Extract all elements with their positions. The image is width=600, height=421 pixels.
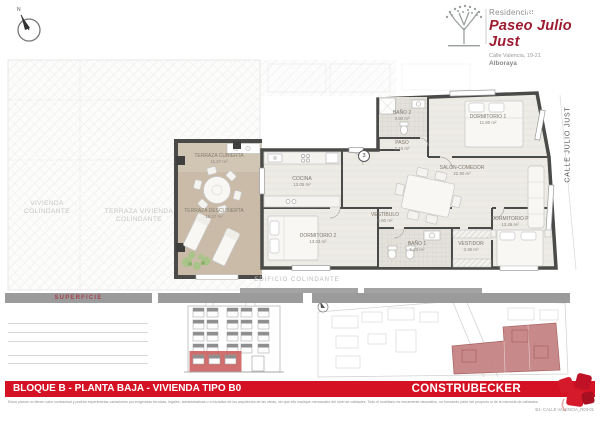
superficie-row-line [8, 355, 148, 356]
room-label-terraza-cubierta: TERRAZA CUBIERTA11.27 m² [194, 153, 243, 165]
room-label-bano-1: BAÑO 15.23 m² [408, 241, 426, 253]
room-label-vestidor: VESTIDOR3.36 m² [458, 241, 484, 253]
construbecker-logo-icon [554, 369, 598, 415]
room-label-dormitorio-2: DORMITORIO 213.03 m² [300, 233, 337, 245]
sofa-icon [528, 166, 544, 228]
superficie-row-line [8, 332, 148, 333]
room-label-terraza-descubierta: TERRAZA DESCUBIERTA18.27 m² [184, 208, 244, 220]
siteplan-header-bar [312, 293, 570, 303]
label-calle-julio-just: CALLE JULIO JUST [565, 105, 572, 185]
room-label-vestibulo: VESTÍBULO5.60 m² [371, 212, 399, 224]
siteplan-highlight [452, 323, 560, 374]
label-edificio-colindante: EDIFICIO COLINDANTE [237, 277, 357, 285]
footer-title: BLOQUE B - PLANTA BAJA - VIVIENDA TIPO B… [13, 381, 241, 397]
superficie-row-line [8, 341, 148, 342]
construbecker-mark-icon [528, 3, 538, 15]
superficie-row-line [8, 363, 148, 364]
elevation-header-bar [158, 293, 303, 303]
compass-north-label: N [17, 7, 21, 13]
room-label-paso: PASO2.16 m² [395, 140, 410, 152]
footer-disclaimer: Estos planos no tienen valor contractual… [8, 400, 596, 404]
label-vivienda-colindante: VIVIENDA COLINDANTE [12, 200, 82, 217]
elevation-thumbnail [184, 299, 284, 372]
room-label-cocina: COCINA13.05 m² [292, 176, 311, 188]
brand-title: Paseo Julio Just [489, 18, 600, 50]
room-label-bano-2: BAÑO 23.80 m² [393, 110, 411, 122]
north-compass-icon [18, 15, 40, 41]
tree-logo-icon [446, 5, 482, 47]
brand-address: Calle Valencia, 19-21 [489, 53, 600, 59]
terrace-counter [227, 144, 260, 154]
construbecker-wordmark: CONSTRUBECKER [412, 381, 521, 397]
footer-title-bar: BLOQUE B - PLANTA BAJA - VIVIENDA TIPO B… [5, 381, 595, 397]
label-terraza-vivienda-colindante: TERRAZA VIVIENDA COLINDANTE [101, 208, 177, 225]
room-label-salon-comedor: SALÓN-COMEDOR22.90 m² [440, 165, 485, 177]
plan-marker: 3 [358, 150, 370, 162]
brand-city: Alboraya [489, 60, 600, 67]
floor-plan-sheet: N Residencial Paseo Julio Just Calle Val… [0, 0, 600, 421]
siteplan-thumbnail [318, 300, 568, 377]
room-label-dormitorio-p: DORMITORIO P13.26 m² [491, 216, 528, 228]
brand-residencial: Residencial [489, 8, 600, 17]
brand-block: Residencial Paseo Julio Just Calle Valen… [489, 8, 600, 67]
superficie-row-line [8, 323, 148, 324]
room-label-dormitorio-1: DORMITORIO 111.80 m² [470, 114, 507, 126]
bed-icon [490, 230, 551, 266]
superficie-header: SUPERFICIE [5, 293, 152, 303]
